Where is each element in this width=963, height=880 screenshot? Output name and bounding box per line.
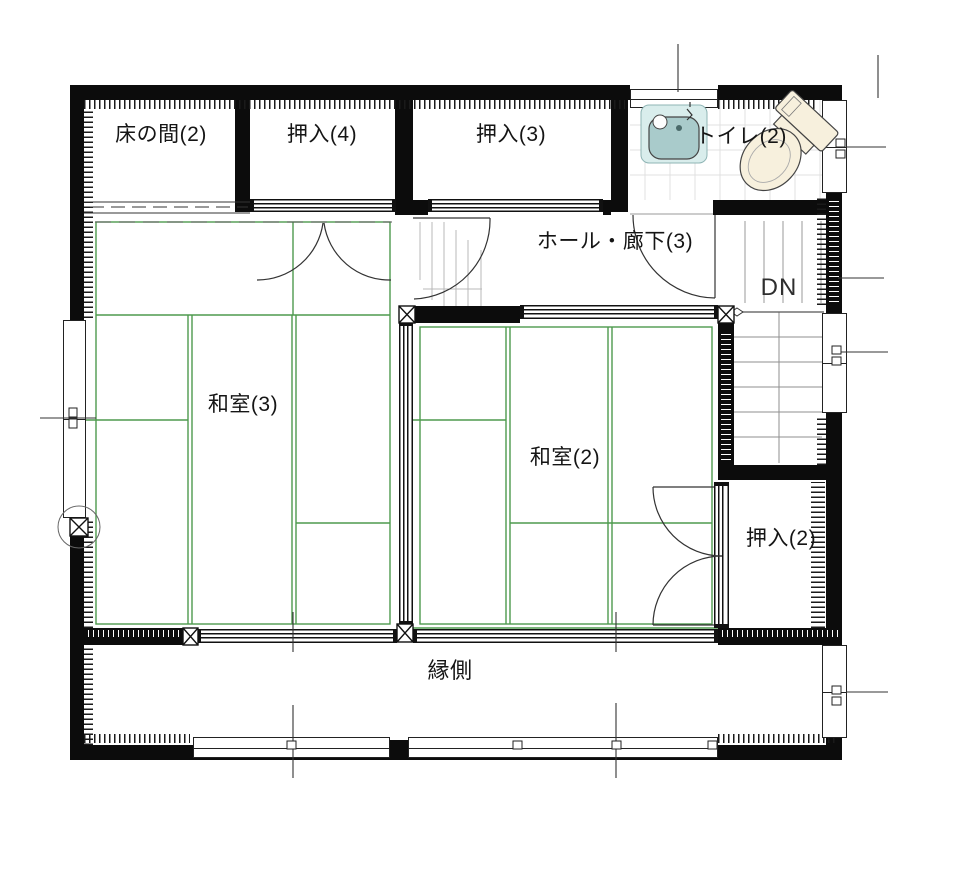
room-label-oshiire3: 押入(3) xyxy=(476,118,546,148)
room-label-washitsu3: 和室(3) xyxy=(208,388,278,418)
floor-plan: 床の間(2) 押入(4) 押入(3) トイレ(2) ホール・廊下(3) DN 和… xyxy=(0,0,963,880)
post-icon xyxy=(718,306,734,323)
tokonoma-front-edge xyxy=(84,202,392,222)
stairs-down-label: DN xyxy=(761,274,798,302)
room-label-oshiire2: 押入(2) xyxy=(746,522,816,552)
door-oshiire2-double xyxy=(653,487,722,625)
post-icon xyxy=(399,306,415,323)
structural-posts xyxy=(58,306,734,645)
room-label-engawa: 縁側 xyxy=(427,653,472,685)
room-label-toilet: トイレ(2) xyxy=(695,120,787,150)
door-oshiire4-double xyxy=(257,223,391,280)
room-label-oshiire4: 押入(4) xyxy=(287,118,357,148)
post-icon-circled xyxy=(58,506,100,548)
room-label-tokonoma: 床の間(2) xyxy=(115,118,207,148)
room-label-washitsu2: 和室(2) xyxy=(530,441,600,471)
door-washitsu3-hall xyxy=(413,218,490,299)
post-icon xyxy=(397,624,413,642)
room-label-hall: ホール・廊下(3) xyxy=(537,225,693,255)
post-icon xyxy=(183,628,198,645)
